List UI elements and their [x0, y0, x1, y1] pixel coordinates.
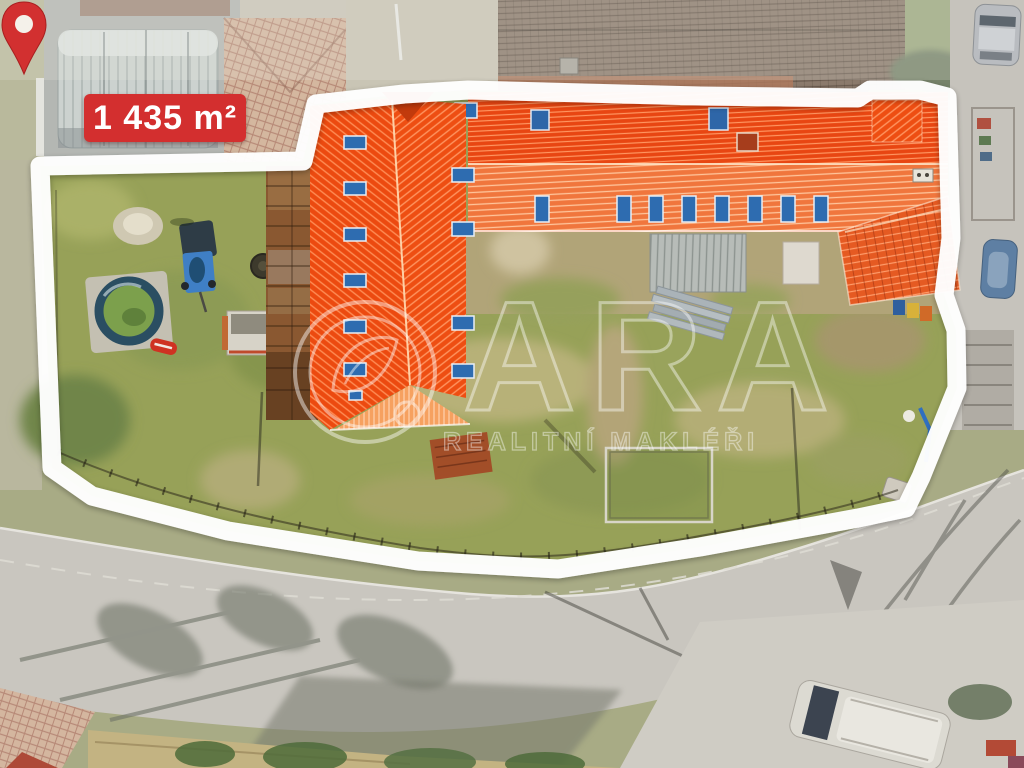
pin-ground-shadow: [170, 218, 194, 226]
location-pin-icon: [0, 0, 48, 78]
parked-car: [972, 4, 1021, 66]
white-ball: [903, 410, 915, 422]
aerial-property-photo: ARA REALITNÍ MAKLÉŘI 1 435 m²: [0, 0, 1024, 768]
corrugated-shed: [650, 234, 746, 292]
white-trailer: [783, 242, 819, 284]
garden-table: [222, 311, 271, 355]
area-size-badge: 1 435 m²: [84, 94, 246, 142]
small-outbuilding-roof: [430, 432, 493, 480]
garden-enclosure: [606, 448, 712, 522]
